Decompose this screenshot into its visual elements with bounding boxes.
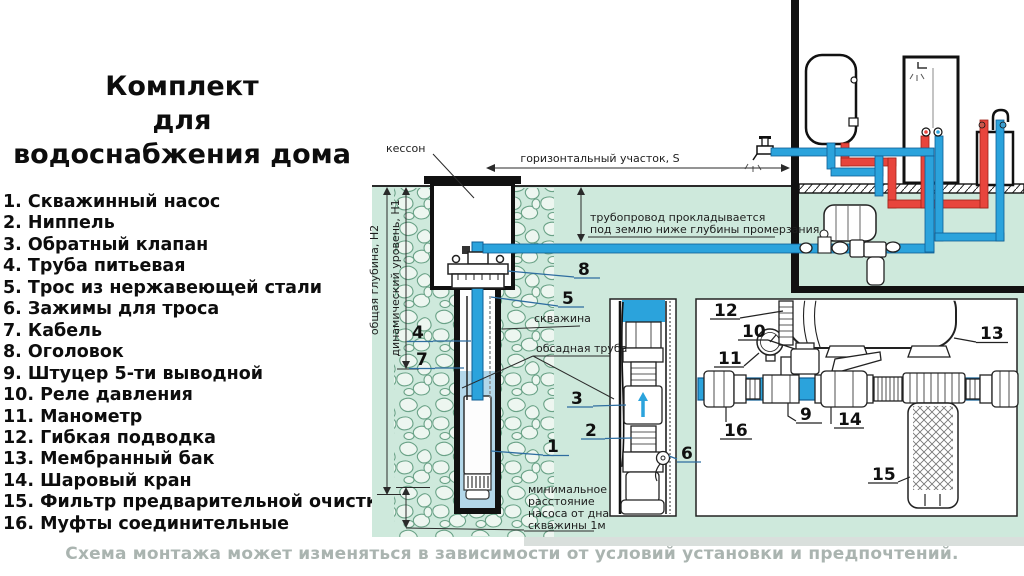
callout-3: 3 — [571, 389, 583, 409]
flexible-hose — [779, 301, 793, 345]
callout-15: 15 — [872, 465, 896, 485]
callout-2: 2 — [585, 421, 597, 441]
callout-12: 12 — [714, 301, 738, 321]
label-well: скважина — [534, 312, 591, 325]
installed-tank — [824, 205, 876, 241]
label-casing-pipe: обсадная труба — [536, 342, 627, 355]
callout-9: 9 — [800, 405, 812, 425]
callout-4: 4 — [412, 323, 424, 343]
caisson-lid — [424, 176, 521, 184]
callout-8: 8 — [578, 260, 590, 280]
coupling-adapter — [874, 377, 902, 401]
label-pipeline-note-2: под землю ниже глубины промерзания — [590, 223, 819, 236]
label-dynamic-level: динамический уровень, Н1 — [389, 199, 402, 356]
callout-11: 11 — [718, 349, 742, 369]
label-horizontal-section: горизонтальный участок, S — [520, 152, 679, 165]
infographic-page: Комплект для водоснабжения дома 1. Скваж… — [0, 0, 1024, 576]
pre-filter — [903, 373, 965, 508]
outdoor-tap — [745, 136, 773, 172]
water-supply-diagram: общая глубина, Н2 динамический уровень, … — [0, 0, 1024, 576]
callout-10: 10 — [742, 322, 766, 342]
label-total-depth: общая глубина, Н2 — [368, 225, 381, 335]
label-caisson: кессон — [386, 142, 425, 155]
callout-16: 16 — [724, 421, 748, 441]
submersible-pump — [464, 396, 491, 499]
station-detail-panel — [696, 284, 1018, 516]
check-valve — [624, 386, 662, 424]
caption-note: Схема монтажа может изменяться в зависим… — [0, 544, 1024, 564]
installed-filter — [864, 242, 886, 257]
label-min-distance-4: скважины 1м — [528, 519, 606, 532]
callout-5: 5 — [562, 289, 574, 309]
callout-14: 14 — [838, 410, 862, 430]
cable-clamp — [657, 452, 670, 465]
water-heater — [806, 55, 858, 144]
callout-13: 13 — [980, 324, 1004, 344]
callout-1: 1 — [547, 437, 559, 457]
callout-6: 6 — [681, 444, 693, 464]
nipple — [631, 426, 656, 452]
callout-7: 7 — [416, 350, 428, 370]
pump-detail-panel — [610, 299, 676, 516]
